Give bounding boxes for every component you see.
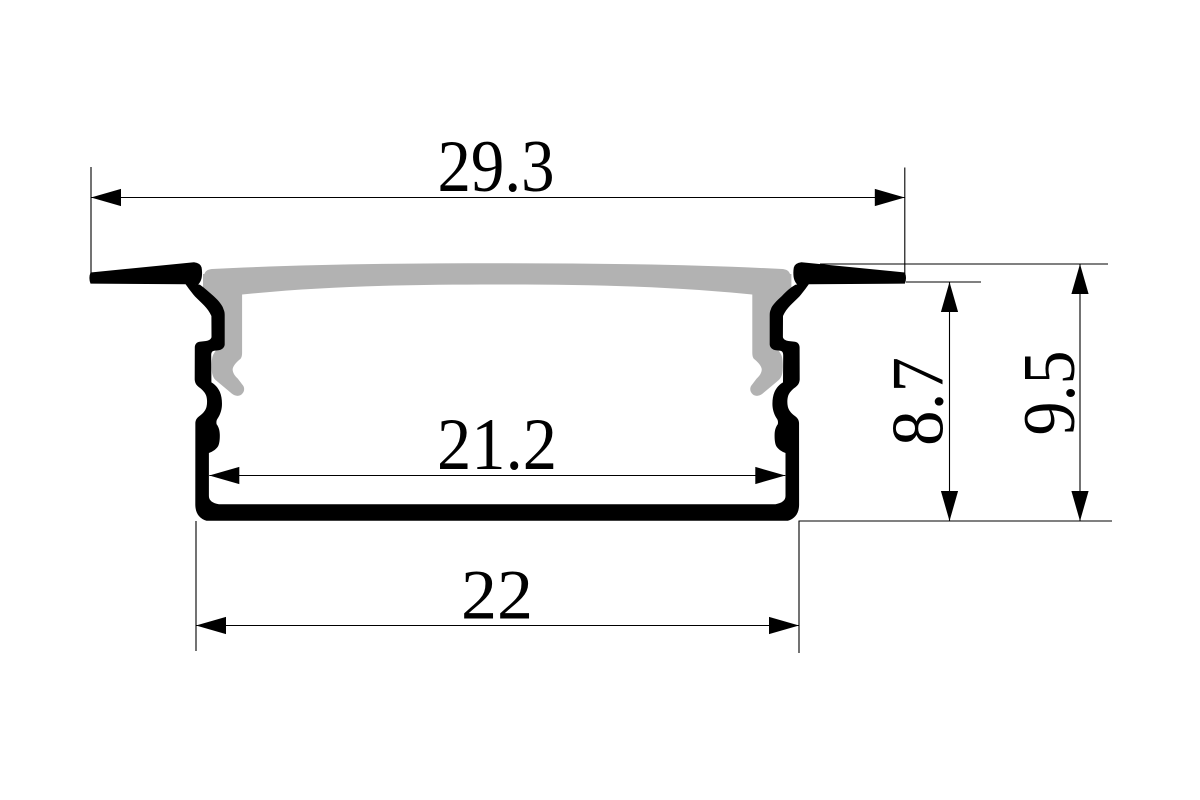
svg-text:8.7: 8.7: [878, 357, 960, 446]
svg-text:29.3: 29.3: [438, 126, 555, 208]
svg-text:21.2: 21.2: [437, 404, 557, 486]
svg-text:9.5: 9.5: [1009, 351, 1091, 436]
svg-text:22: 22: [461, 557, 533, 635]
